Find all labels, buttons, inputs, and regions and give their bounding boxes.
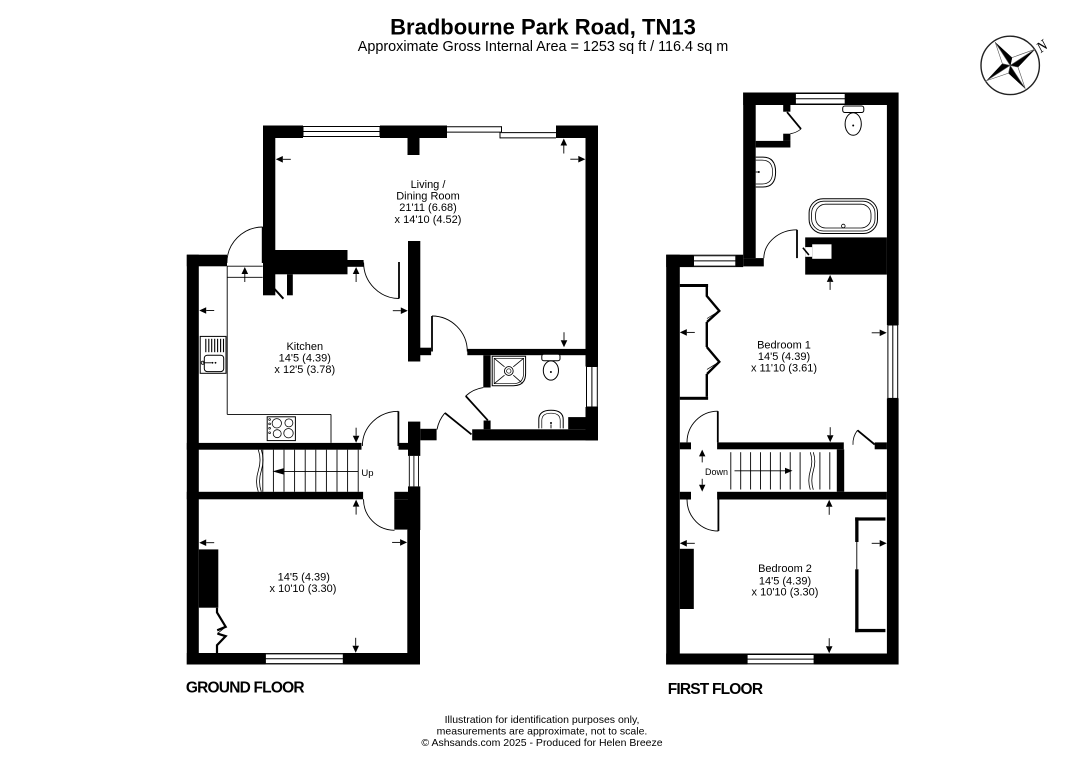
svg-text:14'5 (4.39): 14'5 (4.39) — [758, 351, 810, 363]
svg-text:21'11 (6.68): 21'11 (6.68) — [399, 202, 457, 214]
svg-text:x 14'10 (4.52): x 14'10 (4.52) — [395, 214, 462, 226]
svg-text:14'5 (4.39): 14'5 (4.39) — [278, 572, 330, 584]
svg-text:GROUND FLOOR: GROUND FLOOR — [186, 680, 304, 697]
svg-text:Down: Down — [705, 467, 728, 477]
svg-text:x 10'10 (3.30): x 10'10 (3.30) — [270, 583, 337, 595]
svg-text:measurements are approximate,: measurements are approximate, not to sca… — [437, 726, 648, 738]
svg-text:14'5 (4.39): 14'5 (4.39) — [279, 353, 331, 365]
svg-text:14'5 (4.39): 14'5 (4.39) — [759, 575, 811, 587]
svg-text:x 12'5 (3.78): x 12'5 (3.78) — [274, 364, 335, 376]
svg-text:FIRST FLOOR: FIRST FLOOR — [668, 681, 763, 698]
svg-text:x 10'10 (3.30): x 10'10 (3.30) — [752, 587, 819, 599]
svg-text:Up: Up — [361, 468, 373, 479]
svg-text:Bedroom 1: Bedroom 1 — [757, 340, 811, 352]
svg-text:Living /: Living / — [411, 179, 447, 191]
svg-text:Dining Room: Dining Room — [396, 191, 460, 203]
svg-text:Bedroom 2: Bedroom 2 — [758, 563, 812, 575]
svg-text:Illustration for identificatio: Illustration for identification purposes… — [445, 714, 640, 726]
svg-text:Approximate Gross Internal Are: Approximate Gross Internal Area = 1253 s… — [358, 39, 729, 55]
svg-text:Bradbourne Park Road, TN13: Bradbourne Park Road, TN13 — [390, 15, 696, 40]
svg-text:Kitchen: Kitchen — [286, 341, 323, 353]
svg-text:© Ashsands.com 2025 - Produced: © Ashsands.com 2025 - Produced for Helen… — [421, 737, 662, 749]
svg-text:x 11'10 (3.61): x 11'10 (3.61) — [751, 363, 817, 375]
